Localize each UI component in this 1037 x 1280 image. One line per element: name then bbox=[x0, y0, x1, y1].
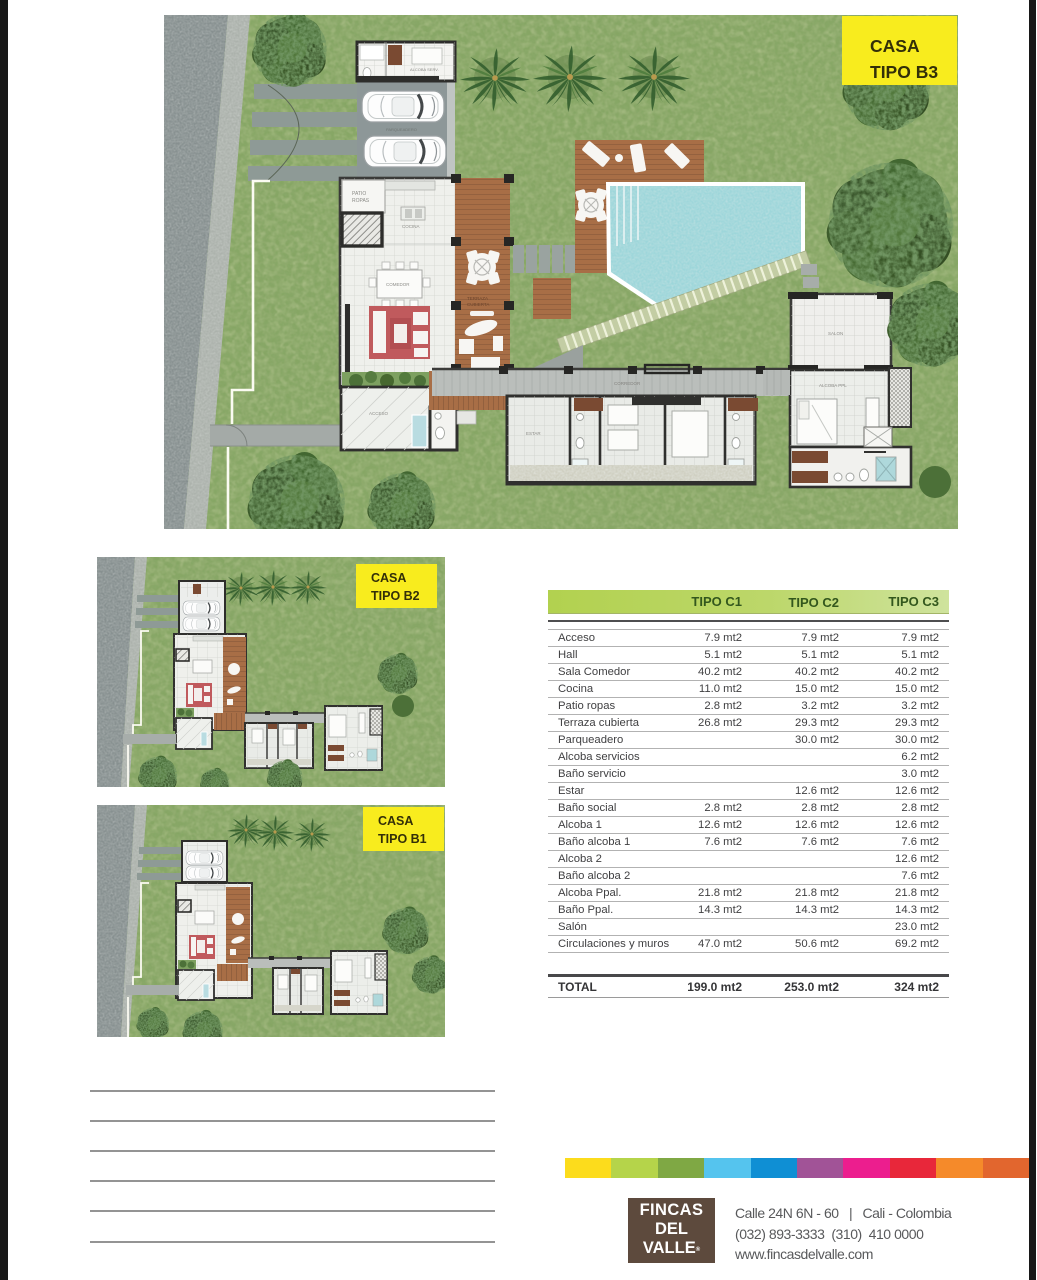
svg-text:COMEDOR: COMEDOR bbox=[386, 282, 410, 287]
svg-text:CASA: CASA bbox=[371, 571, 406, 585]
svg-text:CASA: CASA bbox=[870, 36, 920, 56]
svg-text:COCINA: COCINA bbox=[402, 224, 420, 229]
svg-text:ALCOBA PPL: ALCOBA PPL bbox=[819, 383, 847, 388]
svg-text:PATIO: PATIO bbox=[352, 191, 366, 197]
svg-text:ACCESO: ACCESO bbox=[369, 411, 389, 416]
svg-text:TIPO B2: TIPO B2 bbox=[371, 589, 420, 603]
svg-text:ALCOBA SERV.: ALCOBA SERV. bbox=[410, 67, 439, 72]
svg-text:CASA: CASA bbox=[378, 814, 413, 828]
svg-text:CORREDOR: CORREDOR bbox=[614, 381, 641, 386]
svg-text:TIPO B3: TIPO B3 bbox=[870, 62, 938, 82]
svg-text:TERRAZA: TERRAZA bbox=[467, 296, 488, 301]
svg-text:PARQUEADERO: PARQUEADERO bbox=[386, 127, 417, 132]
svg-text:TIPO B1: TIPO B1 bbox=[378, 832, 427, 846]
svg-text:CUBIERTA: CUBIERTA bbox=[467, 302, 489, 307]
svg-text:ESTAR: ESTAR bbox=[526, 431, 541, 436]
svg-text:ROPAS: ROPAS bbox=[352, 198, 370, 204]
svg-text:SALON: SALON bbox=[828, 331, 843, 336]
